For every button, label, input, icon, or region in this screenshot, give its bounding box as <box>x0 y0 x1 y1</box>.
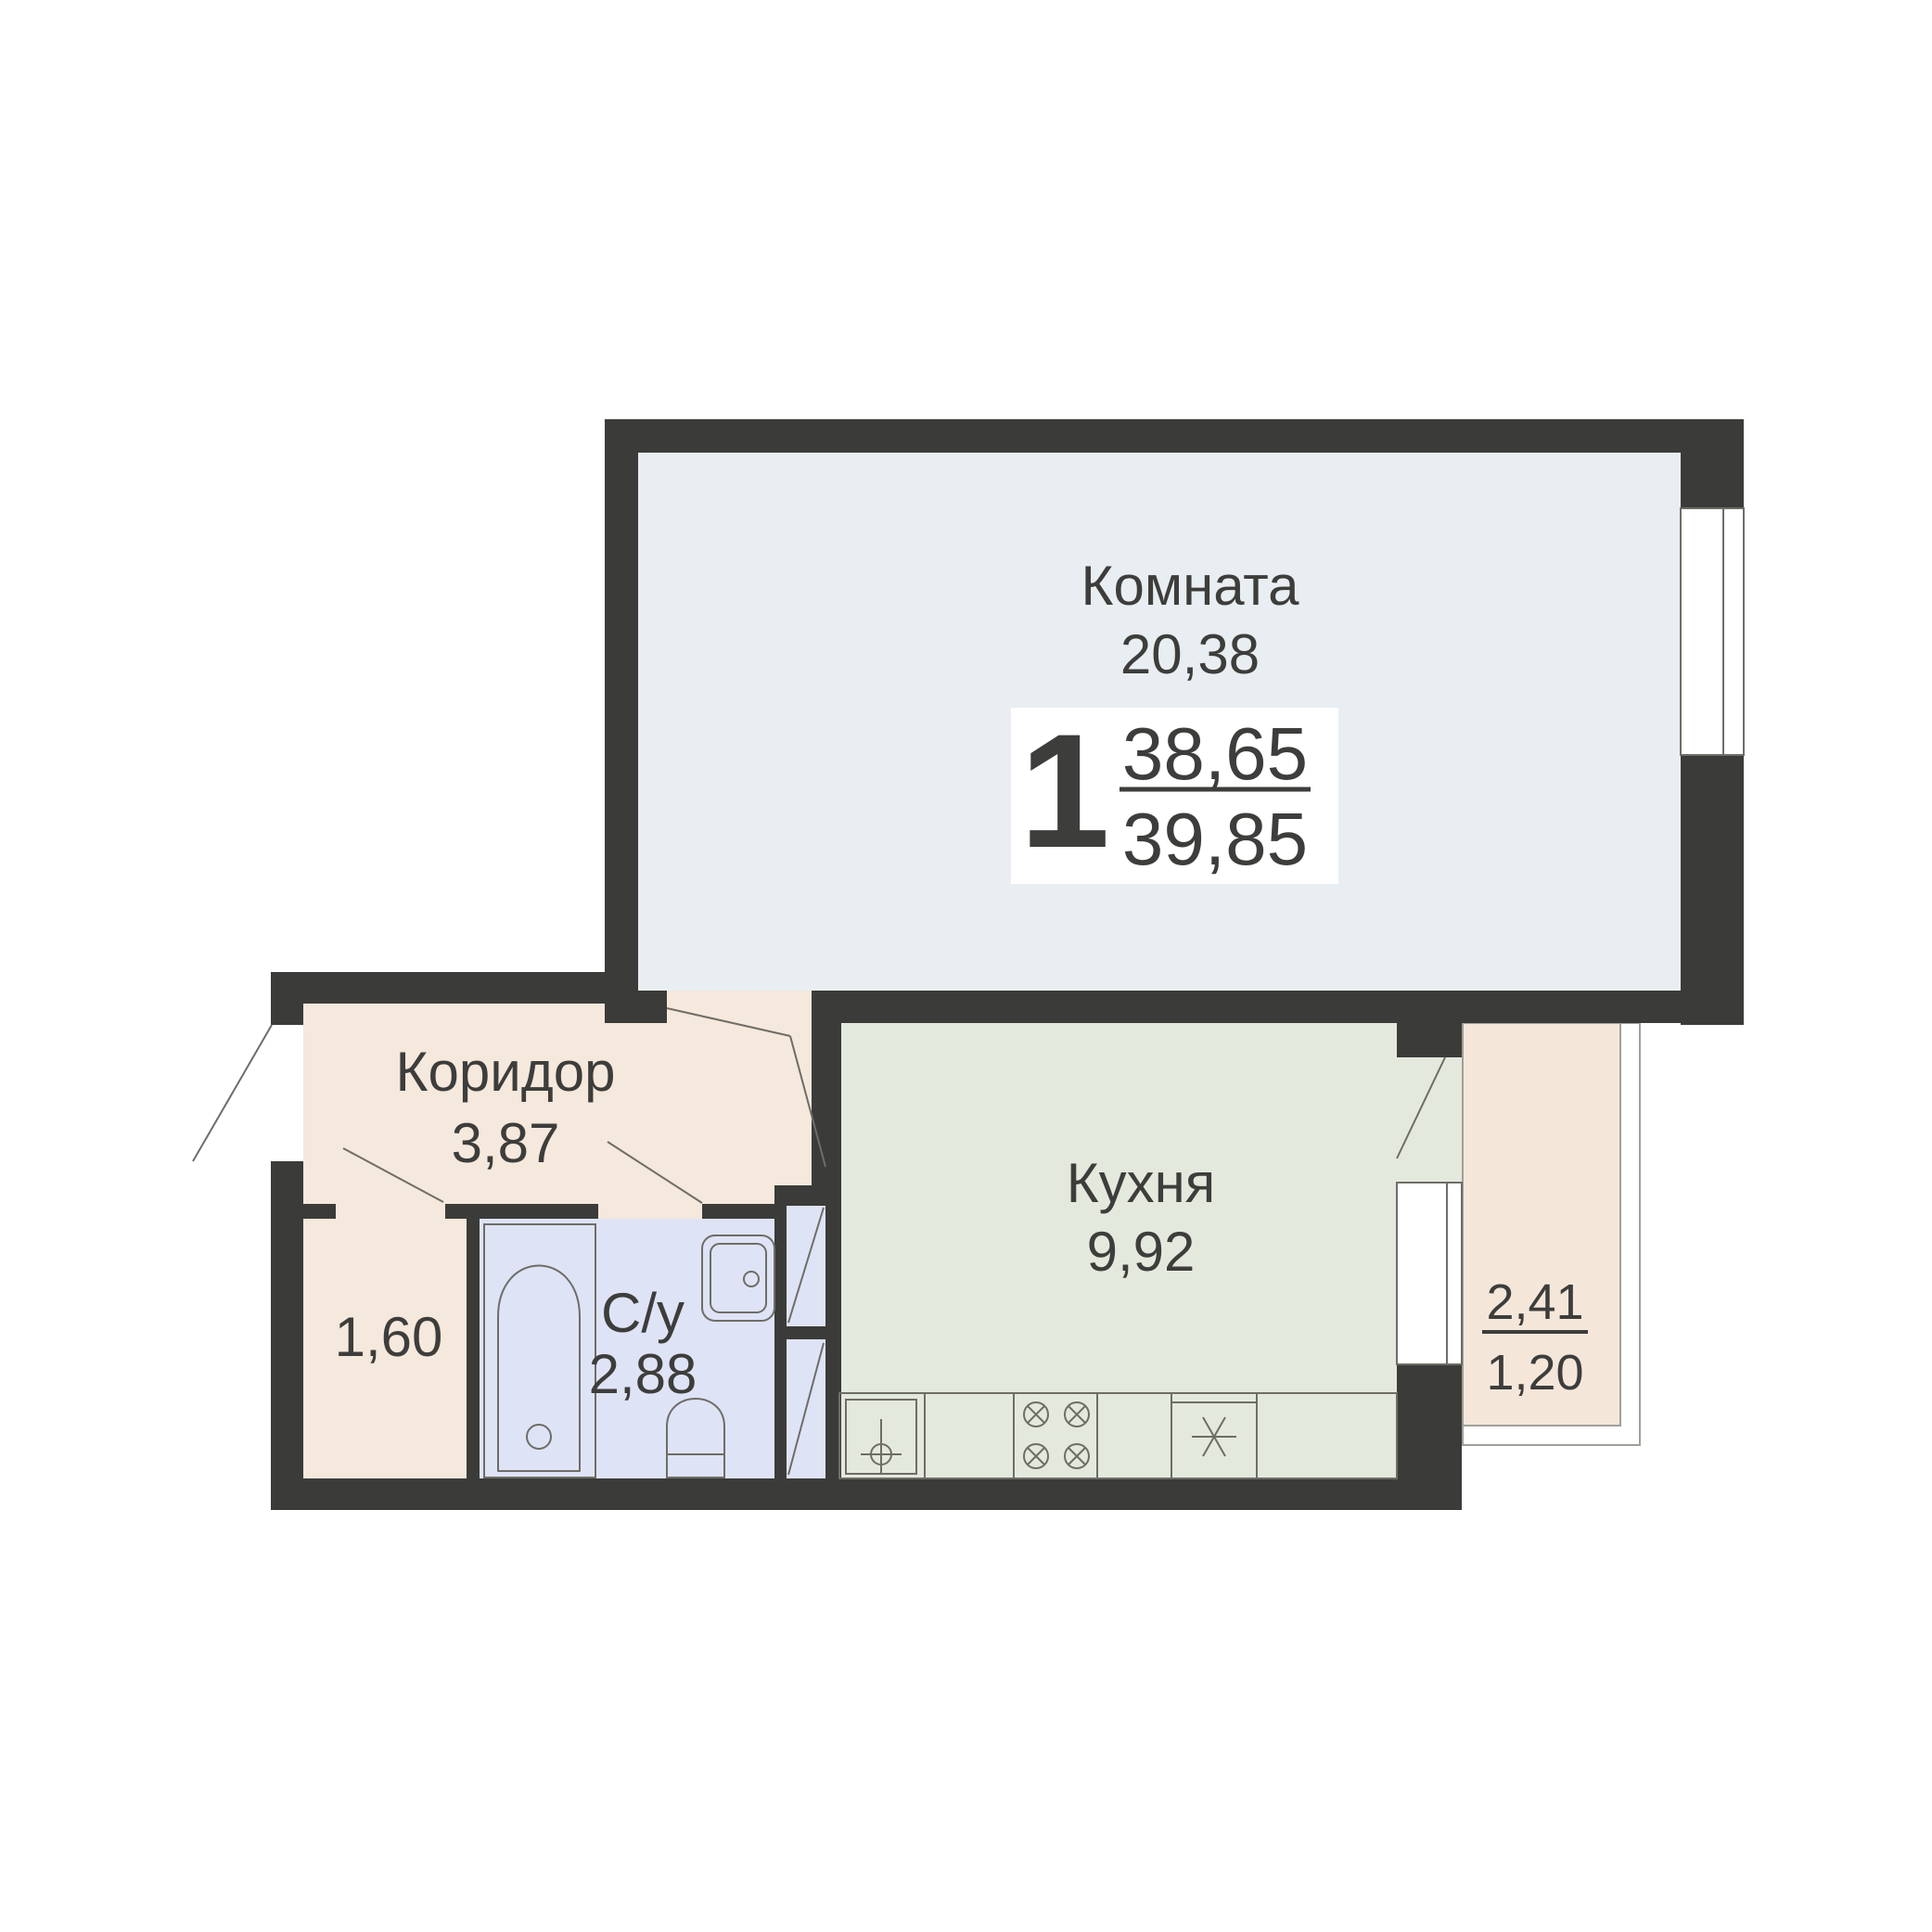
wall <box>1681 755 1744 1025</box>
kitchen-name: Кухня <box>1067 1152 1216 1214</box>
wall <box>271 972 605 1004</box>
corridor-doorway-floor <box>667 991 812 1023</box>
bathroom-area: 2,88 <box>589 1343 697 1405</box>
wall <box>1397 991 1462 1057</box>
corridor-floor <box>303 1004 812 1219</box>
wall <box>812 991 1744 1023</box>
room-fills <box>303 453 1681 1478</box>
living-room-name: Комната <box>1081 555 1300 617</box>
floor-plan: Комната 20,38 Коридор 3,87 Кухня 9,92 С/… <box>0 0 1932 1932</box>
wall <box>271 972 303 1025</box>
storage-area: 1,60 <box>335 1306 443 1368</box>
wall <box>303 1204 336 1219</box>
wall <box>605 419 1744 453</box>
badge-total-area: 39,85 <box>1122 798 1308 880</box>
kitchen-area: 9,92 <box>1087 1221 1196 1283</box>
corridor-area: 3,87 <box>452 1112 560 1174</box>
bathroom-name: С/у <box>601 1282 685 1344</box>
wall <box>774 1185 841 1206</box>
badge-rooms-count: 1 <box>1019 701 1109 882</box>
wall <box>1681 419 1744 508</box>
wall <box>467 1219 480 1478</box>
wall <box>812 991 841 1185</box>
wall <box>271 1161 303 1510</box>
living-room-area: 20,38 <box>1120 623 1260 685</box>
wall <box>605 991 667 1023</box>
wall <box>787 1326 825 1339</box>
living-room-window <box>1681 508 1744 755</box>
badge-living-area: 38,65 <box>1122 712 1308 795</box>
balcony-doorway-floor <box>1397 1057 1462 1183</box>
balcony-area-full: 2,41 <box>1486 1274 1583 1330</box>
kitchen-window <box>1397 1183 1462 1364</box>
wall <box>1397 1364 1462 1510</box>
area-badge: 1 38,65 39,85 <box>1011 701 1338 884</box>
corridor-name: Коридор <box>396 1041 616 1103</box>
wall <box>271 1478 1462 1510</box>
entrance-door-swing <box>193 1025 272 1161</box>
wall <box>702 1204 774 1219</box>
wall <box>605 453 638 1023</box>
balcony-area-reduced: 1,20 <box>1486 1345 1583 1401</box>
wall <box>445 1204 598 1219</box>
wall <box>774 1206 787 1478</box>
